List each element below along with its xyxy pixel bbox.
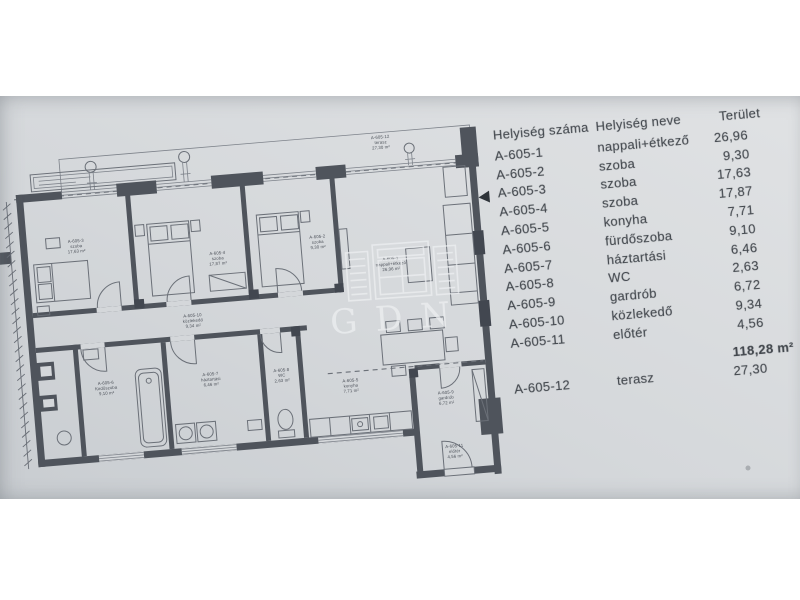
room-area: 9,30 [722,146,750,163]
room-label: A-605-7háztartási6,46 m² [200,371,221,388]
table-rows: A-605-1 nappali+étkező 26,96 A-605-2 szo… [491,124,796,400]
room-area: 6,46 [730,240,758,257]
room-area: 7,71 [727,202,755,219]
room-area: 17,63 [716,165,751,183]
room-area: 4,56 [736,314,764,331]
col-header-area: Terület [718,105,760,123]
room-area: 26,96 [713,127,748,145]
paper-speck [746,466,751,471]
room-area: 9,34 [735,296,763,313]
room-area: 6,72 [733,277,761,294]
room-label: A-605-10közlekedő9,34 m² [182,312,204,329]
room-label: A-605-5konyha7,71 m² [342,377,360,394]
room-area: 118,28 m² [732,339,794,359]
room-area: 2,63 [732,258,760,275]
room-area: 17,87 [718,183,753,201]
room-area: 27,30 [733,361,768,379]
room-label: A-605-9gardrób6,72 m² [438,389,456,406]
room-area: 9,10 [729,221,757,238]
room-table: Helyiség száma Helyiség neve Terület A-6… [487,76,796,400]
scanned-floorplan-page: A-605-1nappali+étkező26,96 m²A-605-2szob… [0,0,800,600]
